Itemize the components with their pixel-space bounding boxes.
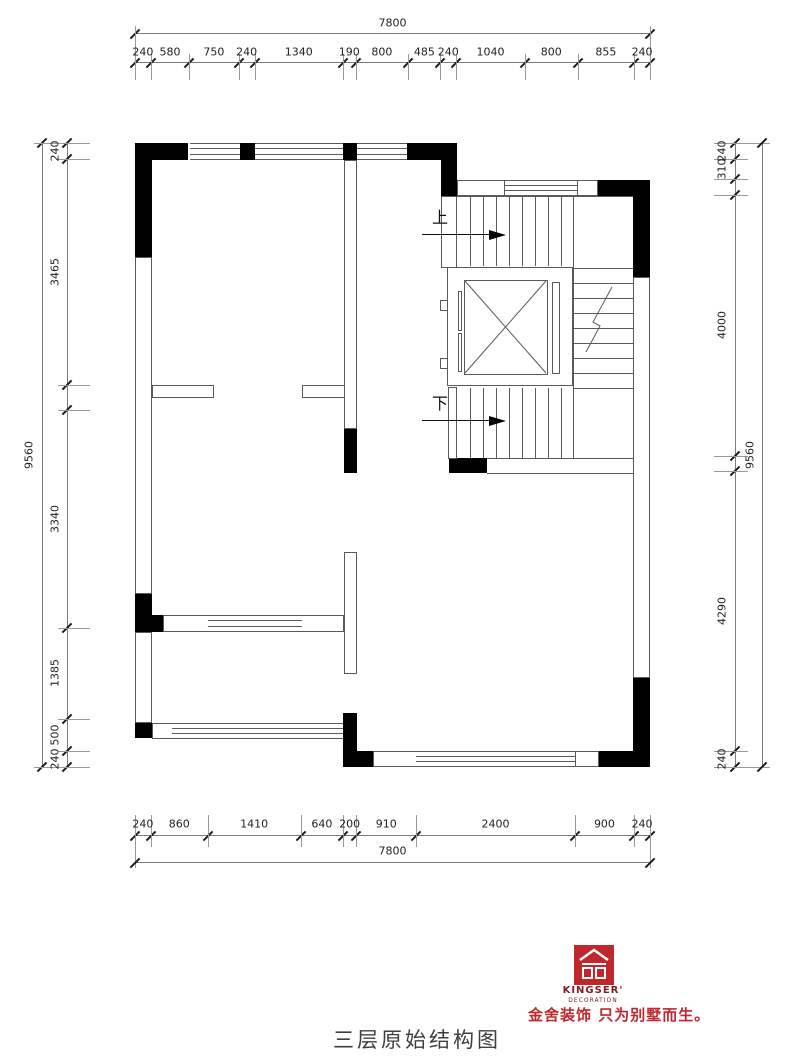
wall-hollow: [575, 751, 599, 767]
dim-label: 4000: [716, 311, 729, 339]
dim-extension: [58, 719, 90, 720]
dim-label: 580: [159, 46, 180, 59]
stair-up-arrow-line: [422, 234, 490, 235]
wall-solid: [135, 722, 152, 738]
dim-extension: [58, 159, 90, 160]
stair-tread: [522, 196, 523, 266]
dim-extension: [58, 751, 90, 752]
stair-tread: [573, 268, 633, 269]
dim-line: [135, 862, 650, 863]
wall-hollow: [552, 282, 560, 374]
stair-tread: [573, 343, 633, 344]
wall-hollow: [441, 196, 457, 268]
dim-label: 240: [236, 46, 257, 59]
dim-extension: [525, 54, 526, 80]
wall-hollow: [373, 751, 417, 767]
stair-tread: [522, 388, 523, 458]
wall-solid: [343, 713, 357, 767]
stair-down-arrow-line: [422, 420, 490, 421]
stair-down-label: 下: [432, 396, 448, 412]
dim-extension: [714, 195, 748, 196]
dim-extension: [408, 54, 409, 80]
wall-hollow: [440, 358, 448, 369]
wall-hollow: [448, 387, 457, 459]
stair-tread: [561, 388, 562, 458]
dim-label: 200: [339, 818, 360, 831]
wall-hollow: [344, 160, 357, 429]
dim-label: 1410: [240, 818, 268, 831]
dim-label: 800: [541, 46, 562, 59]
stair-up-arrowhead-icon: [489, 230, 506, 240]
dim-label: 240: [132, 818, 153, 831]
stair-tread: [573, 373, 633, 374]
floorplan-canvas: 7800240580750240134019080048524010408008…: [0, 0, 800, 1063]
dim-label: 240: [632, 818, 653, 831]
stair-tread: [509, 388, 510, 458]
wall-hollow: [458, 291, 462, 331]
stair-tread: [548, 196, 549, 266]
plan-line: [573, 388, 633, 389]
stair-tread: [573, 328, 633, 329]
wall-solid: [598, 751, 650, 767]
window: [357, 143, 407, 160]
dim-label: 7800: [379, 17, 407, 30]
brand-tagline: 金舍装饰 只为别墅而生。: [528, 1004, 710, 1025]
stair-tread: [535, 388, 536, 458]
drawing-title: 三层原始结构图: [333, 1024, 501, 1054]
dim-extension: [34, 143, 90, 144]
dim-line: [135, 33, 650, 34]
wall-solid: [343, 143, 357, 160]
wall-solid: [598, 180, 650, 196]
dim-label: 240: [49, 140, 62, 161]
stair-tread: [561, 196, 562, 266]
stair-tread: [573, 298, 633, 299]
dim-extension: [575, 815, 576, 847]
dim-extension: [301, 815, 302, 847]
wall-solid: [344, 428, 357, 473]
stair-tread: [573, 358, 633, 359]
dim-extension: [34, 767, 90, 768]
wall-hollow: [633, 277, 650, 678]
wall-hollow: [458, 333, 462, 372]
window: [190, 143, 240, 160]
dim-label: 240: [438, 46, 459, 59]
stair-tread: [573, 283, 633, 284]
stair-tread: [483, 388, 484, 458]
dim-label: 240: [716, 749, 729, 770]
dim-label: 485: [414, 46, 435, 59]
dim-label: 7800: [379, 845, 407, 858]
brand-subtitle: DECORATION: [561, 997, 625, 1004]
stair-tread: [548, 388, 549, 458]
kingser-logo-icon: [574, 945, 614, 985]
dim-label: 240: [49, 749, 62, 770]
dim-line: [135, 62, 650, 63]
dim-label: 9560: [744, 441, 757, 469]
window: [208, 615, 302, 632]
dim-extension: [416, 815, 417, 847]
stair-tread: [535, 196, 536, 266]
dim-label: 310: [716, 158, 729, 179]
dim-line: [42, 143, 43, 767]
stair-tread: [483, 196, 484, 266]
dim-extension: [58, 410, 90, 411]
dim-label: 1385: [49, 659, 62, 687]
wall-solid: [240, 143, 255, 160]
stair-up-label: 上: [432, 210, 448, 226]
wall-solid: [441, 160, 457, 196]
stair-down-arrowhead-icon: [489, 416, 506, 426]
stair-tread: [509, 196, 510, 266]
window: [416, 751, 575, 767]
wall-hollow: [302, 385, 345, 398]
wall-solid: [135, 143, 152, 257]
dim-extension: [208, 815, 209, 847]
stair-tread: [470, 388, 471, 458]
wall-hollow: [152, 723, 173, 739]
dim-label: 3465: [49, 258, 62, 286]
dim-label: 3340: [49, 505, 62, 533]
stair-tread: [470, 196, 471, 266]
dim-label: 4290: [716, 597, 729, 625]
dim-label: 900: [594, 818, 615, 831]
wall-solid: [135, 593, 152, 632]
dim-extension: [58, 385, 90, 386]
dim-label: 1040: [477, 46, 505, 59]
dim-extension: [578, 54, 579, 80]
dim-label: 855: [595, 46, 616, 59]
wall-hollow: [135, 632, 152, 723]
dim-extension: [714, 471, 748, 472]
plan-line: [487, 473, 633, 474]
floor-plan: 7800240580750240134019080048524010408008…: [0, 0, 800, 1063]
wall-solid: [357, 751, 373, 767]
plan-line: [573, 196, 574, 458]
wall-solid: [633, 196, 650, 277]
dim-extension: [189, 54, 190, 80]
dim-label: 9560: [23, 441, 36, 469]
dim-label: 910: [376, 818, 397, 831]
stair-tread: [573, 313, 633, 314]
dim-line: [67, 143, 68, 767]
window: [255, 143, 343, 160]
wall-hollow: [457, 180, 505, 196]
wall-hollow: [464, 280, 548, 375]
dim-label: 1340: [285, 46, 313, 59]
wall-hollow: [440, 300, 448, 311]
wall-hollow: [577, 180, 598, 196]
dim-extension: [58, 628, 90, 629]
wall-solid: [407, 143, 457, 160]
dim-label: 240: [632, 46, 653, 59]
dim-line: [762, 143, 763, 767]
window: [172, 723, 343, 739]
dim-label: 640: [311, 818, 332, 831]
dim-label: 860: [169, 818, 190, 831]
wall-hollow: [152, 385, 214, 398]
wall-solid: [449, 458, 487, 473]
dim-label: 2400: [482, 818, 510, 831]
dim-label: 500: [49, 725, 62, 746]
wall-hollow: [135, 257, 152, 594]
dim-label: 800: [371, 46, 392, 59]
dim-label: 240: [132, 46, 153, 59]
dim-label: 750: [203, 46, 224, 59]
wall-hollow: [344, 552, 357, 674]
plan-line: [487, 458, 633, 459]
dim-label: 190: [339, 46, 360, 59]
window: [505, 180, 577, 196]
brand-name: KINGSER': [561, 985, 625, 996]
